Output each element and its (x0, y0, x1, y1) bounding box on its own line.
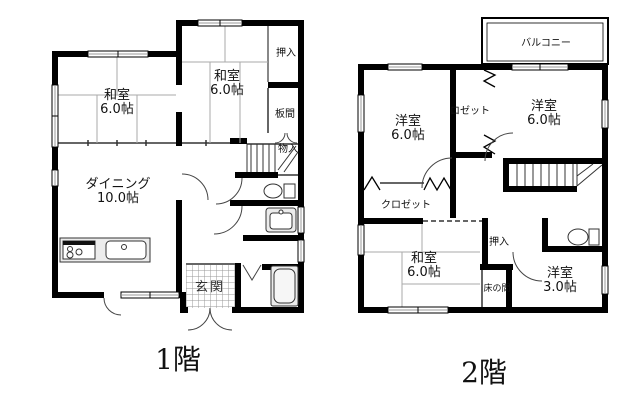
wall-segment (602, 294, 608, 313)
door-arc (182, 174, 208, 200)
window (358, 95, 364, 132)
wall-segment (176, 200, 182, 292)
room-size: 10.0帖 (97, 192, 139, 206)
room-name: 洋室 (395, 115, 421, 129)
room-label-balcony-2f: バルコニー (521, 37, 571, 51)
wall-segment (180, 307, 188, 313)
room-name: ダイニング (85, 178, 150, 192)
kitchen-counter (60, 238, 150, 262)
room-size: 6.0帖 (100, 103, 134, 117)
room-name: 和室 (214, 70, 240, 84)
window (198, 20, 242, 26)
window (88, 51, 148, 57)
balcony-door-window (512, 64, 568, 70)
wall-segment (52, 292, 104, 298)
storage-door-arc (275, 133, 285, 143)
room-size: 6.0帖 (210, 84, 244, 98)
wall-segment (542, 246, 608, 252)
window (602, 266, 608, 294)
floor1-title: 1階 (155, 338, 201, 378)
wall-segment (176, 20, 182, 85)
stair-winder-diagonal (577, 165, 602, 186)
wall-segment (358, 307, 388, 313)
wall-segment (230, 200, 304, 206)
entrance-door-arc (210, 308, 232, 330)
wall-segment (358, 218, 423, 224)
washbasin-icon (266, 208, 296, 232)
wall-segment (358, 64, 364, 95)
room-size: 6.0帖 (527, 114, 561, 128)
wall-segment (243, 235, 304, 241)
room-label-itanoma-1f: 板間 (275, 108, 295, 122)
room-label-tokonoma-2f: 床の間 (483, 282, 510, 296)
wall-segment (358, 132, 364, 225)
door-arc (214, 206, 242, 234)
wall-segment (448, 307, 608, 313)
wall-segment (268, 82, 304, 88)
room-name: 和室 (104, 89, 130, 103)
sliding-glass-door (121, 292, 179, 298)
wall-segment (509, 158, 602, 164)
floor2-stairs (517, 164, 602, 186)
door-arc (513, 252, 542, 281)
floor1-walls (52, 20, 304, 313)
room-size: 6.0帖 (391, 129, 425, 143)
room-label-washitsu-top-1f: 和室 6.0帖 (210, 70, 244, 98)
bathtub-icon (271, 266, 298, 306)
window (358, 225, 364, 255)
toilet-icon (568, 229, 599, 245)
wall-segment (503, 186, 577, 192)
sink-icon (106, 241, 146, 259)
wall-segment (602, 128, 608, 266)
window (298, 240, 304, 262)
wall-segment (358, 255, 364, 313)
window (52, 170, 58, 186)
door-arc (104, 298, 121, 315)
wall-segment (602, 64, 608, 100)
window (388, 307, 448, 313)
window (52, 85, 58, 147)
wall-segment (232, 307, 304, 313)
floor2-fixtures (568, 229, 599, 245)
room-name: 和室 (411, 252, 437, 266)
wall-segment (176, 112, 182, 146)
room-name: 洋室 (531, 100, 557, 114)
stove-icon (63, 241, 95, 259)
floor2-title: 2階 (461, 351, 507, 391)
room-size: 6.0帖 (407, 266, 441, 280)
window (298, 207, 304, 233)
room-size: 3.0帖 (543, 281, 577, 295)
wall-segment (235, 172, 278, 178)
room-label-genkan-1f: 玄関 (195, 281, 225, 295)
window (388, 64, 422, 70)
window (602, 100, 608, 128)
room-label-dining-1f: ダイニング 10.0帖 (85, 178, 150, 206)
toilet-icon (264, 184, 295, 198)
folding-door (243, 265, 261, 280)
folding-door (484, 70, 495, 87)
room-label-monoire-1f: 物入 (278, 143, 298, 157)
folding-door (364, 177, 380, 190)
wall-segment (422, 64, 512, 70)
folding-door (484, 135, 495, 154)
floor2-folding-doors (364, 70, 495, 190)
wall-segment (450, 158, 456, 218)
room-label-closet-left-2f: クロゼット (381, 199, 431, 213)
wall-segment (235, 263, 241, 313)
room-label-yoshitsu-right-2f: 洋室 6.0帖 (527, 100, 561, 128)
wall-segment (482, 218, 488, 264)
room-label-washitsu-left-1f: 和室 6.0帖 (100, 89, 134, 117)
floor1-drawing (52, 20, 304, 330)
room-label-yoshitsu-small-2f: 洋室 3.0帖 (543, 267, 577, 295)
room-label-washitsu-2f: 和室 6.0帖 (407, 252, 441, 280)
room-label-yoshitsu-left-2f: 洋室 6.0帖 (391, 115, 425, 143)
wall-segment (230, 138, 247, 144)
room-name: 洋室 (547, 267, 573, 281)
entrance-door-arc (188, 308, 210, 330)
room-label-oshiire-2f: 押入 (489, 236, 509, 250)
floorplan-canvas: 和室 6.0帖 和室 6.0帖 押入 板間 物入 ダイニング 10.0帖 玄関 … (0, 0, 640, 407)
storage-door-arc (287, 133, 297, 143)
folding-door (424, 178, 451, 190)
room-label-closet-mid-2f: ロゼット (450, 105, 490, 119)
room-label-oshiire-1f: 押入 (276, 47, 296, 61)
